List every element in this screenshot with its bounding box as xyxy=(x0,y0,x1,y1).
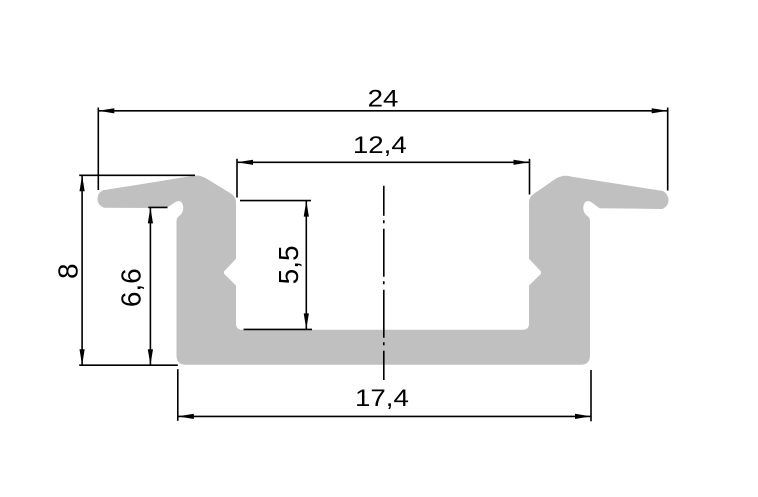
svg-text:24: 24 xyxy=(368,84,399,112)
svg-text:5,5: 5,5 xyxy=(273,245,304,284)
svg-text:17,4: 17,4 xyxy=(355,383,409,411)
svg-text:8: 8 xyxy=(52,263,83,279)
svg-text:6,6: 6,6 xyxy=(116,268,147,307)
svg-text:12,4: 12,4 xyxy=(353,131,407,159)
